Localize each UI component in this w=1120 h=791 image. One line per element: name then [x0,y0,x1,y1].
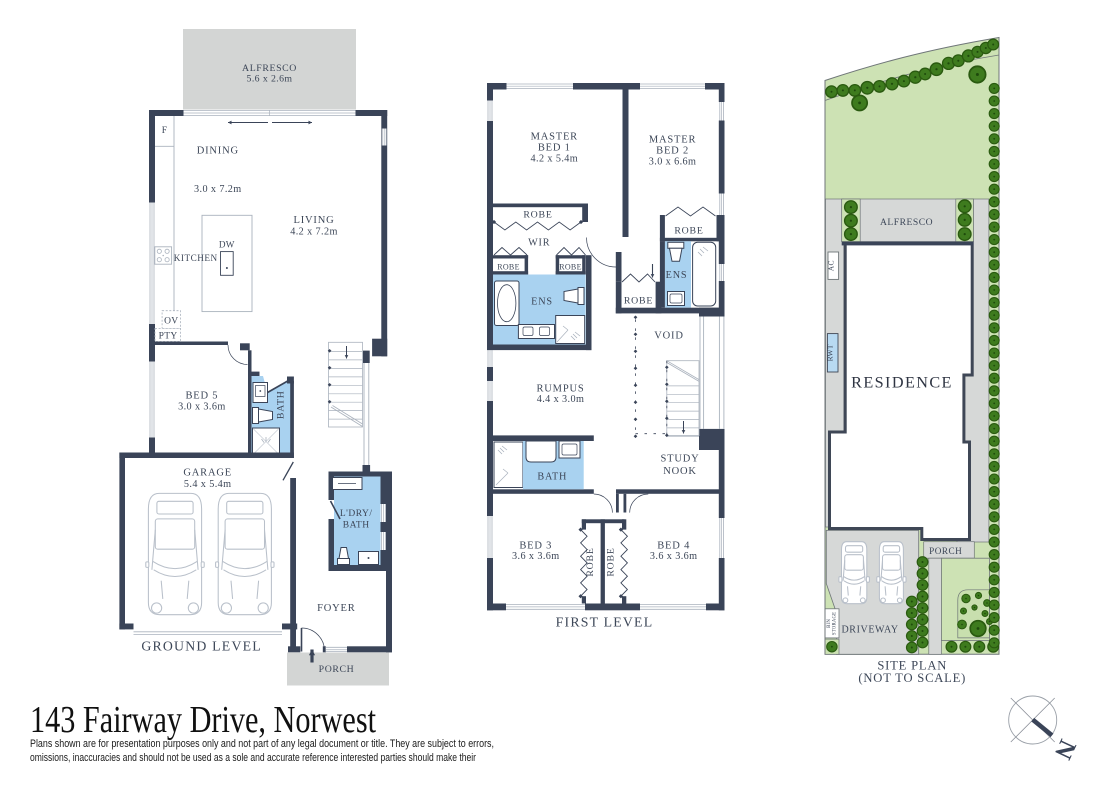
svg-text:Plans shown are for presentati: Plans shown are for presentation purpose… [30,738,494,750]
svg-text:4.2 x 5.4m: 4.2 x 5.4m [531,154,579,165]
svg-text:DINING: DINING [197,146,239,157]
svg-text:4.4 x 3.0m: 4.4 x 3.0m [537,394,585,405]
svg-text:ROBE: ROBE [674,226,703,237]
svg-text:ALFRESCO: ALFRESCO [242,63,297,74]
svg-text:ROBE: ROBE [523,210,552,221]
svg-text:F: F [162,126,168,136]
svg-text:L'DRY/: L'DRY/ [340,509,373,519]
svg-text:DW: DW [219,240,235,250]
svg-text:(NOT TO SCALE): (NOT TO SCALE) [858,671,966,685]
svg-text:RWT: RWT [826,344,835,361]
svg-text:RESIDENCE: RESIDENCE [851,374,953,392]
svg-text:3.0 x 7.2m: 3.0 x 7.2m [194,184,242,195]
svg-text:STORAGE: STORAGE [833,612,838,635]
svg-text:ENS: ENS [666,270,688,281]
svg-text:5.4 x 5.4m: 5.4 x 5.4m [184,479,232,490]
svg-text:BIN: BIN [827,619,832,628]
svg-text:ROBE: ROBE [559,263,582,272]
svg-text:PORCH: PORCH [929,546,962,556]
svg-text:ROBE: ROBE [605,547,616,576]
svg-text:BED 3: BED 3 [519,541,552,552]
svg-text:BATH: BATH [276,390,287,419]
svg-text:3.6 x 3.6m: 3.6 x 3.6m [512,551,560,562]
svg-text:OV: OV [164,316,178,326]
svg-text:NOOK: NOOK [663,466,697,477]
svg-text:MASTER: MASTER [531,132,578,143]
svg-text:LIVING: LIVING [294,215,335,226]
svg-text:ROBE: ROBE [497,263,520,272]
svg-text:5.6 x 2.6m: 5.6 x 2.6m [247,74,293,85]
svg-text:RUMPUS: RUMPUS [537,384,585,395]
svg-text:omissions, inaccuracies and sh: omissions, inaccuracies and should not b… [30,752,476,764]
svg-text:VOID: VOID [654,331,683,342]
svg-text:PTY: PTY [159,331,178,341]
svg-text:MASTER: MASTER [649,135,696,146]
svg-text:AC: AC [826,260,835,271]
svg-text:143 Fairway Drive, Norwest: 143 Fairway Drive, Norwest [30,699,376,741]
svg-text:3.0 x 3.6m: 3.0 x 3.6m [178,402,226,413]
svg-text:3.0 x 6.6m: 3.0 x 6.6m [649,157,697,168]
svg-text:FOYER: FOYER [317,603,355,614]
svg-text:ALFRESCO: ALFRESCO [880,217,933,228]
svg-text:FIRST LEVEL: FIRST LEVEL [556,615,654,630]
svg-text:BED 5: BED 5 [185,391,218,402]
svg-text:ROBE: ROBE [585,547,596,576]
svg-text:ROBE: ROBE [624,296,653,307]
svg-text:4.2 x 7.2m: 4.2 x 7.2m [290,227,338,238]
svg-text:GROUND LEVEL: GROUND LEVEL [141,639,262,654]
svg-text:BED 2: BED 2 [656,146,689,157]
svg-text:BATH: BATH [537,472,567,483]
svg-text:ENS: ENS [531,297,553,308]
svg-text:WIR: WIR [528,237,550,248]
svg-text:3.6 x 3.6m: 3.6 x 3.6m [650,551,698,562]
svg-text:DRIVEWAY: DRIVEWAY [841,625,898,636]
svg-text:STUDY: STUDY [660,454,699,465]
svg-text:GARAGE: GARAGE [183,468,232,479]
svg-text:PORCH: PORCH [319,664,355,675]
svg-text:BATH: BATH [343,521,370,531]
svg-text:BED 4: BED 4 [657,541,690,552]
svg-text:BED 1: BED 1 [538,143,571,154]
svg-text:KITCHEN: KITCHEN [174,253,218,263]
